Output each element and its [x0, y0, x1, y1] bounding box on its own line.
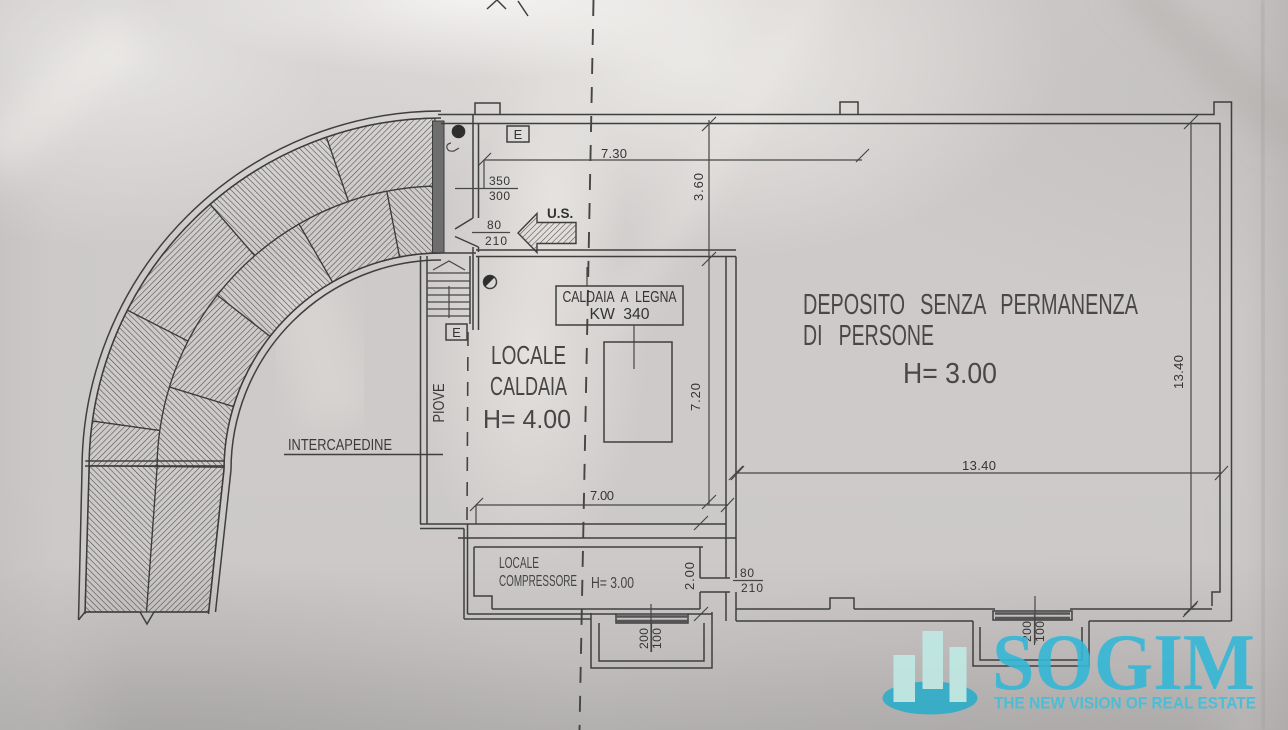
svg-text:E: E	[514, 127, 523, 142]
svg-text:7.00: 7.00	[590, 488, 614, 503]
svg-text:210: 210	[741, 581, 763, 595]
svg-text:H= 3.00: H= 3.00	[591, 575, 634, 592]
svg-text:13.40: 13.40	[962, 458, 996, 473]
svg-text:KW 340: KW 340	[590, 306, 650, 323]
svg-text:300: 300	[489, 189, 510, 203]
svg-text:350: 350	[489, 174, 510, 188]
svg-text:200: 200	[637, 628, 651, 649]
svg-text:CALDAIA A LEGNA: CALDAIA A LEGNA	[563, 289, 677, 306]
svg-text:7.20: 7.20	[688, 383, 703, 411]
svg-text:3.60: 3.60	[691, 173, 706, 201]
svg-text:INTERCAPEDINE: INTERCAPEDINE	[288, 437, 392, 454]
svg-text:210: 210	[485, 234, 507, 248]
svg-text:H= 3.00: H= 3.00	[903, 358, 997, 390]
svg-text:H= 4.00: H= 4.00	[483, 404, 571, 434]
svg-text:80: 80	[740, 566, 754, 580]
svg-text:PIOVE: PIOVE	[431, 384, 448, 423]
svg-text:LOCALE: LOCALE	[491, 340, 566, 370]
svg-text:E: E	[452, 325, 461, 340]
svg-text:2.00: 2.00	[682, 562, 697, 590]
svg-text:DI PERSONE: DI PERSONE	[803, 320, 934, 352]
svg-text:7.30: 7.30	[601, 146, 627, 161]
svg-text:80: 80	[487, 218, 501, 232]
svg-text:COMPRESSORE: COMPRESSORE	[499, 573, 577, 590]
svg-text:THE NEW VISION OF REAL ESTATE: THE NEW VISION OF REAL ESTATE	[994, 695, 1256, 713]
svg-text:U.S.: U.S.	[547, 206, 573, 221]
svg-text:LOCALE: LOCALE	[499, 555, 539, 572]
svg-text:CALDAIA: CALDAIA	[490, 371, 567, 401]
svg-text:DEPOSITO SENZA PERMANENZA: DEPOSITO SENZA PERMANENZA	[803, 289, 1138, 321]
svg-text:13.40: 13.40	[1171, 355, 1186, 389]
